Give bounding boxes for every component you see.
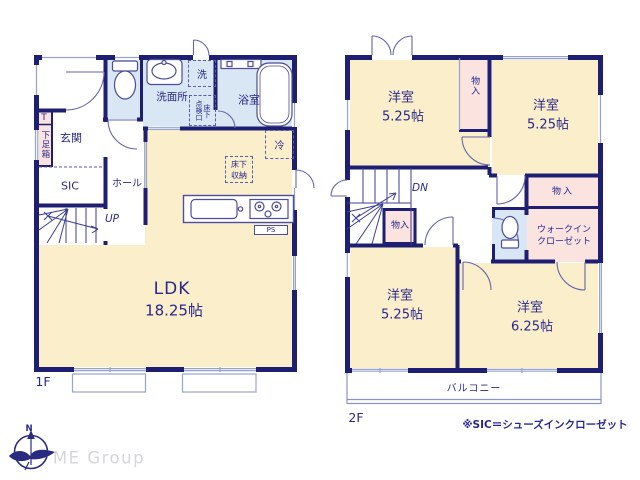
label-closet-east: 物入: [552, 187, 574, 197]
label-room-sw-size: 5.25帖: [381, 309, 423, 324]
label-ps: PS: [267, 226, 276, 234]
room-ldk: [145, 129, 295, 370]
label-closet-top: 物入: [469, 76, 479, 96]
label-balcony: バルコニー: [447, 383, 502, 395]
label-shoebox: 下足箱: [39, 131, 49, 160]
underfloor-storage-box: 床下 収納: [225, 156, 253, 183]
label-wic-line1: ウォークイン: [537, 225, 591, 235]
label-room-nw-size: 5.25帖: [382, 111, 424, 126]
room-nw-ext: [459, 131, 490, 168]
room-toilet-1f: [107, 57, 143, 119]
label-dn: DN: [412, 182, 428, 194]
terrace-steps: [73, 374, 257, 392]
label-room-ne: 洋室: [533, 100, 559, 115]
label-floor-1f: 1F: [35, 375, 50, 389]
label-closet-stair: 物入: [391, 221, 409, 231]
label-room-se: 洋室: [517, 302, 543, 317]
compass-n-label: N: [25, 425, 32, 435]
hatch-col-left: 点検口: [195, 100, 202, 121]
label-room-nw: 洋室: [388, 92, 414, 107]
underfloor-l2: 収納: [231, 170, 247, 181]
stairs-1f: [39, 208, 98, 243]
compass-icon: [9, 430, 55, 470]
label-genkan: 玄関: [60, 133, 82, 146]
floorplan-page: { "plan": { "f1": { "floor_label": "1F",…: [0, 0, 640, 480]
room-toilet-2f: [492, 207, 527, 263]
room-se: [459, 263, 601, 371]
washer-box: 洗: [188, 60, 216, 87]
label-wic-line2: クローゼット: [537, 237, 591, 247]
underfloor-l1: 床下: [231, 159, 247, 170]
inspection-hatch-box: 点検口 床下: [189, 95, 216, 126]
label-ldk-size: 18.25帖: [145, 302, 203, 319]
label-washroom: 洗面所: [156, 91, 188, 103]
label-room-sw: 洋室: [387, 290, 413, 305]
label-up: UP: [105, 213, 119, 225]
hatch-col-right: 床下: [203, 104, 210, 118]
washer-label: 洗: [197, 66, 207, 81]
label-room-se-size: 6.25帖: [511, 321, 553, 336]
sic-note: ※SIC＝シューズインクローゼット: [462, 419, 627, 431]
label-ldk: LDK: [154, 280, 191, 300]
room-ldk-lower: [38, 245, 148, 370]
label-hall: ホール: [112, 178, 142, 190]
fridge-label: 冷: [275, 137, 285, 152]
brand-logo-text: ME Group: [53, 450, 145, 469]
room-ne: [492, 57, 600, 175]
label-shoebox-t: T: [41, 113, 47, 123]
label-floor-2f: 2F: [348, 411, 363, 425]
label-sic: SIC: [61, 181, 79, 194]
label-bath: 浴室: [238, 95, 260, 108]
label-room-ne-size: 5.25帖: [527, 119, 569, 134]
fridge-box: 冷: [265, 130, 294, 159]
